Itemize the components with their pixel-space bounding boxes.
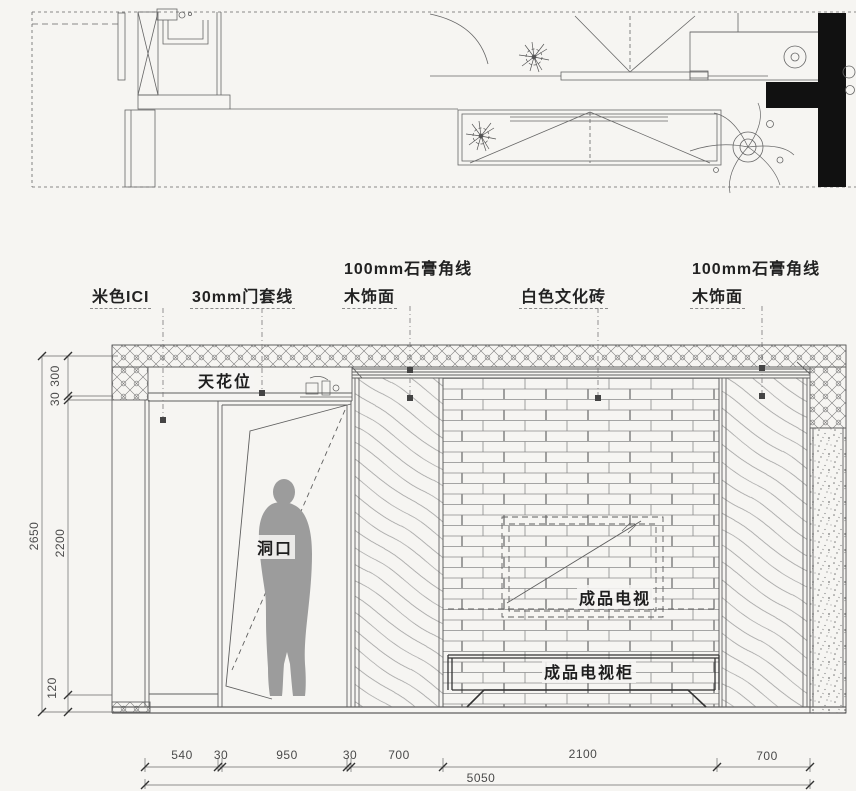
dim-2200: 2200	[53, 529, 67, 558]
label-plaster-left-1: 100mm石膏角线	[342, 255, 474, 280]
drawing-canvas	[0, 0, 856, 791]
dim-300: 300	[48, 365, 62, 387]
label-plaster-right-2: 木饰面	[690, 283, 745, 309]
dim-5050: 5050	[467, 771, 496, 785]
label-plaster-left-2: 木饰面	[342, 283, 397, 309]
dim-540: 540	[171, 748, 193, 762]
dim-700-a: 700	[388, 748, 410, 762]
wood-panel-left	[355, 378, 443, 707]
right-wall-pier	[810, 428, 846, 713]
dim-950: 950	[276, 748, 298, 762]
label-beige-ici: 米色ICI	[90, 283, 151, 309]
plan-view	[32, 9, 856, 193]
dim-120: 120	[45, 677, 59, 699]
elevation-view	[38, 306, 846, 789]
human-silhouette	[259, 479, 312, 696]
label-white-brick: 白色文化砖	[519, 283, 608, 309]
dim-30-a: 30	[214, 748, 228, 762]
dim-2650: 2650	[27, 522, 41, 551]
label-tv: 成品电视	[577, 585, 653, 609]
sketched-plant	[690, 103, 794, 193]
label-ceiling-position: 天花位	[196, 368, 254, 392]
cad-sheet: 米色ICI 30mm门套线 100mm石膏角线 木饰面 白色文化砖 100mm石…	[0, 0, 856, 791]
wood-panel-right	[722, 378, 807, 707]
dim-30-v: 30	[48, 392, 62, 406]
label-tv-cabinet: 成品电视柜	[542, 659, 636, 683]
label-door-opening: 洞口	[255, 535, 295, 559]
dim-2100: 2100	[569, 747, 598, 761]
dim-700-b: 700	[756, 749, 778, 763]
door-hardware	[300, 376, 352, 397]
label-door-casing: 30mm门套线	[190, 283, 295, 309]
label-plaster-right-1: 100mm石膏角线	[690, 255, 822, 280]
dim-30-b: 30	[343, 748, 357, 762]
